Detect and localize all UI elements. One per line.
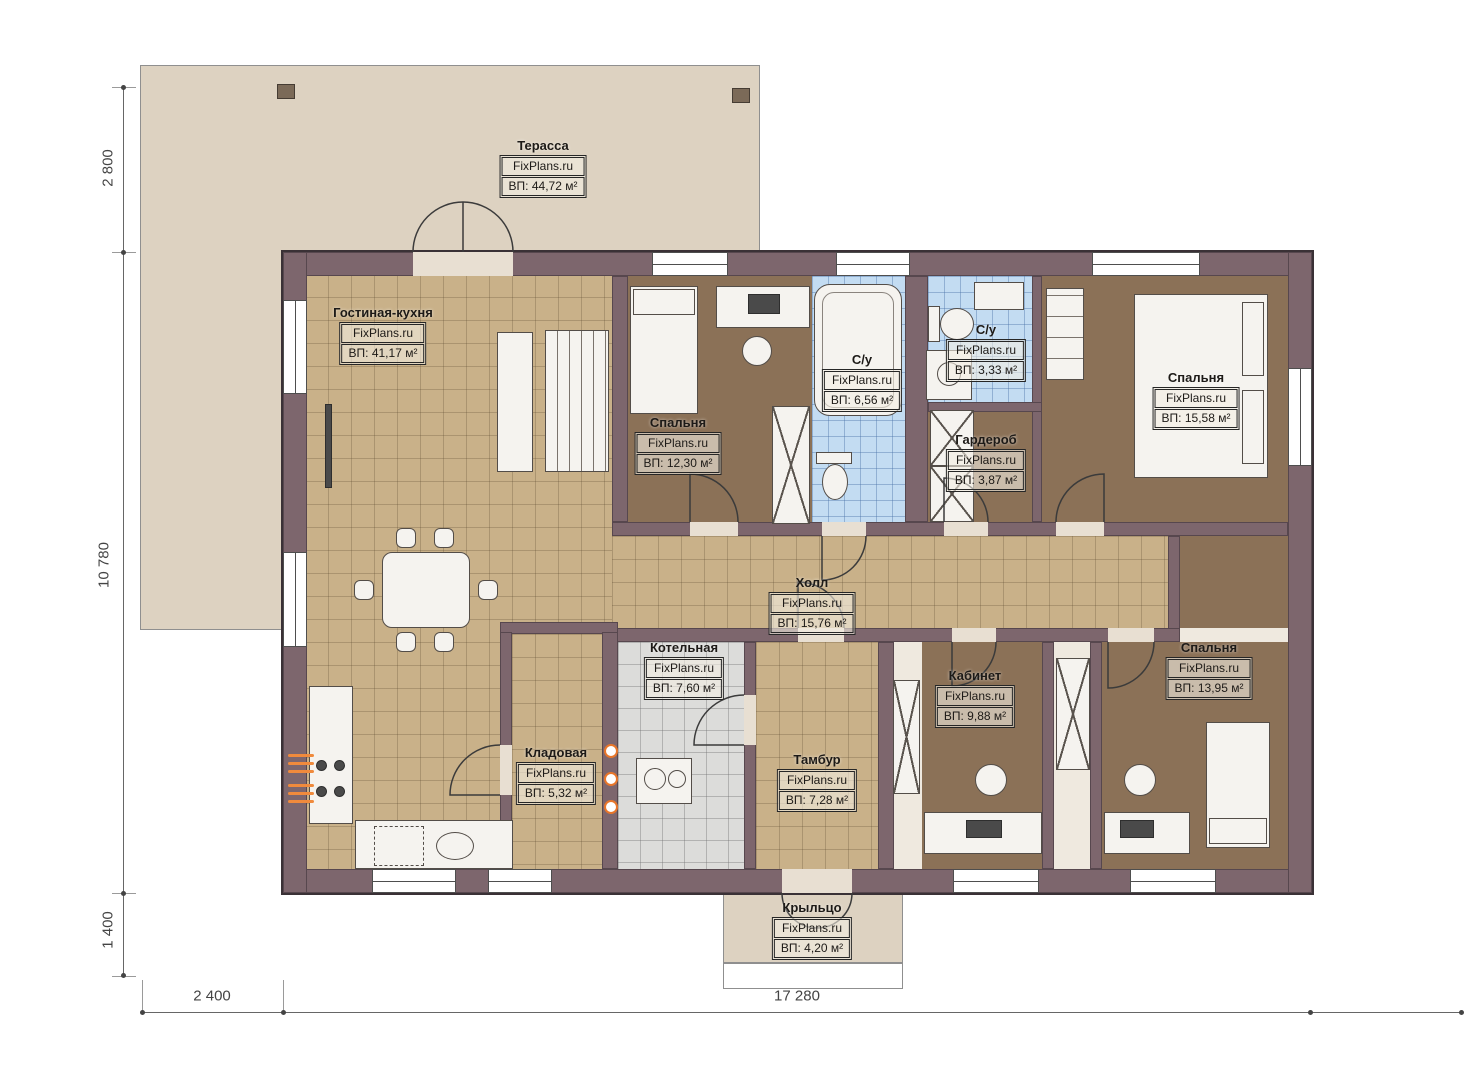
chair-icon xyxy=(434,528,454,548)
dimension-label-house-height: 10 780 xyxy=(96,542,113,588)
wall-interior xyxy=(612,276,628,522)
wall-interior xyxy=(1168,536,1180,642)
dimension-tick xyxy=(281,1010,286,1015)
pipe-mark-icon xyxy=(288,784,314,787)
pipe-mark-icon xyxy=(288,792,314,795)
pillow-icon xyxy=(1242,302,1264,376)
window xyxy=(953,869,1039,893)
watermark: FixPlans.ru xyxy=(1168,659,1251,678)
dimension-label-terrace-depth: 2 800 xyxy=(100,149,117,187)
room-name: С/у xyxy=(822,352,902,367)
wall-interior xyxy=(1090,642,1102,869)
room-label-bedroom-3: Спальня FixPlans.ru ВП: 13,95 м² xyxy=(1166,640,1253,700)
watermark: FixPlans.ru xyxy=(771,594,854,613)
room-area: ВП: 3,33 м² xyxy=(948,361,1024,380)
room-area: ВП: 5,32 м² xyxy=(518,784,594,803)
wall-interior xyxy=(905,276,928,522)
wardrobe-icon xyxy=(1056,658,1090,770)
wall-right xyxy=(1288,252,1312,893)
closet-icon xyxy=(893,680,920,794)
room-label-terrace: Терасса FixPlans.ru ВП: 44,72 м² xyxy=(500,138,587,198)
window xyxy=(283,552,307,647)
chair-icon xyxy=(434,632,454,652)
room-label-living-kitchen: Гостиная-кухня FixPlans.ru ВП: 41,17 м² xyxy=(333,305,433,365)
pipe-mark-icon xyxy=(288,800,314,803)
toilet-icon xyxy=(822,464,848,500)
chair-icon xyxy=(396,632,416,652)
window xyxy=(488,869,552,893)
shelving-icon xyxy=(545,330,609,472)
room-floor-hall xyxy=(612,536,1168,628)
dining-table-icon xyxy=(382,552,470,628)
toilet-tank-icon xyxy=(928,306,940,342)
watermark: FixPlans.ru xyxy=(948,451,1024,470)
room-floor-bedroom-3-upper xyxy=(1180,536,1288,628)
chair-icon xyxy=(478,580,498,600)
room-label-office: Кабинет FixPlans.ru ВП: 9,88 м² xyxy=(935,668,1015,728)
office-chair-icon xyxy=(1124,764,1156,796)
window xyxy=(1288,368,1312,466)
room-label-boiler: Котельная FixPlans.ru ВП: 7,60 м² xyxy=(644,640,724,700)
window xyxy=(372,869,456,893)
room-name: Терасса xyxy=(500,138,587,153)
room-label-bathroom-1: С/у FixPlans.ru ВП: 6,56 м² xyxy=(822,352,902,412)
watermark: FixPlans.ru xyxy=(779,771,855,790)
room-area: ВП: 13,95 м² xyxy=(1168,679,1251,698)
dimension-tick xyxy=(121,973,126,978)
door-opening xyxy=(500,745,512,795)
boiler-dial-icon xyxy=(668,770,686,788)
room-area: ВП: 4,20 м² xyxy=(774,939,850,958)
heating-manifold-icon xyxy=(604,800,618,814)
watermark: FixPlans.ru xyxy=(502,157,585,176)
door-opening xyxy=(413,252,513,276)
room-area: ВП: 12,30 м² xyxy=(637,454,720,473)
room-name: Кабинет xyxy=(935,668,1015,683)
room-label-bathroom-2: С/у FixPlans.ru ВП: 3,33 м² xyxy=(946,322,1026,382)
wardrobe-icon xyxy=(772,406,810,524)
chair-icon xyxy=(396,528,416,548)
room-label-porch: Крыльцо FixPlans.ru ВП: 4,20 м² xyxy=(772,900,852,960)
tv-icon xyxy=(325,404,332,488)
dimension-tick xyxy=(140,1010,145,1015)
room-area: ВП: 9,88 м² xyxy=(937,707,1013,726)
room-area: ВП: 3,87 м² xyxy=(948,471,1024,490)
wall-interior xyxy=(744,642,756,869)
stove-burner-icon xyxy=(316,786,327,797)
watermark: FixPlans.ru xyxy=(937,687,1013,706)
stove-burner-icon xyxy=(334,760,345,771)
room-area: ВП: 44,72 м² xyxy=(502,177,585,196)
pipe-mark-icon xyxy=(288,754,314,757)
dimension-label-porch-depth: 1 400 xyxy=(100,911,117,949)
dimension-ext xyxy=(142,980,143,1014)
pillow-icon xyxy=(1209,818,1267,844)
terrace-pillar xyxy=(277,84,295,99)
room-name: Гардероб xyxy=(946,432,1026,447)
door-opening xyxy=(952,628,996,642)
room-area: ВП: 41,17 м² xyxy=(342,344,425,363)
room-label-wardrobe: Гардероб FixPlans.ru ВП: 3,87 м² xyxy=(946,432,1026,492)
dimension-tick xyxy=(121,85,126,90)
room-area: ВП: 7,60 м² xyxy=(646,679,722,698)
room-area: ВП: 6,56 м² xyxy=(824,391,900,410)
watermark: FixPlans.ru xyxy=(518,764,594,783)
sink-icon xyxy=(974,282,1024,310)
dimension-tick xyxy=(121,891,126,896)
watermark: FixPlans.ru xyxy=(824,371,900,390)
chair-icon xyxy=(354,580,374,600)
laptop-icon xyxy=(748,294,780,314)
room-name: Гостиная-кухня xyxy=(333,305,433,320)
room-name: Котельная xyxy=(644,640,724,655)
terrace-pillar xyxy=(732,88,750,103)
stove-burner-icon xyxy=(334,786,345,797)
dimension-ext xyxy=(283,980,284,1014)
room-area: ВП: 15,58 м² xyxy=(1155,409,1238,428)
office-chair-icon xyxy=(742,336,772,366)
room-name: Спальня xyxy=(1166,640,1253,655)
room-label-vestibule: Тамбур FixPlans.ru ВП: 7,28 м² xyxy=(777,752,857,812)
dimension-label-house-width: 17 280 xyxy=(774,988,820,1005)
room-label-hall: Холл FixPlans.ru ВП: 15,76 м² xyxy=(769,575,856,635)
window xyxy=(283,300,307,394)
pillow-icon xyxy=(1242,390,1264,464)
room-area: ВП: 7,28 м² xyxy=(779,791,855,810)
dimension-line-left xyxy=(123,87,124,976)
watermark: FixPlans.ru xyxy=(637,434,720,453)
door-opening xyxy=(944,522,988,536)
room-area: ВП: 15,76 м² xyxy=(771,614,854,633)
wall-storage-top xyxy=(500,622,618,634)
dishwasher-icon xyxy=(374,826,424,866)
window xyxy=(652,252,728,276)
wall-interior xyxy=(878,642,894,869)
kitchen-island-icon xyxy=(497,332,533,472)
pipe-mark-icon xyxy=(288,770,314,773)
room-label-bedroom-2: Спальня FixPlans.ru ВП: 15,58 м² xyxy=(1153,370,1240,430)
room-name: Кладовая xyxy=(516,745,596,760)
room-name: Спальня xyxy=(1153,370,1240,385)
door-opening xyxy=(782,869,852,893)
window xyxy=(836,252,910,276)
printer-icon xyxy=(966,820,1002,838)
room-name: С/у xyxy=(946,322,1026,337)
office-chair-icon xyxy=(975,764,1007,796)
watermark: FixPlans.ru xyxy=(646,659,722,678)
heating-manifold-icon xyxy=(604,772,618,786)
dimension-line-bottom xyxy=(142,1012,1462,1013)
closet-icon xyxy=(1046,288,1084,380)
pipe-mark-icon xyxy=(288,762,314,765)
door-opening xyxy=(1108,628,1154,642)
door-opening xyxy=(1056,522,1104,536)
boiler-dial-icon xyxy=(644,768,666,790)
printer-icon xyxy=(1120,820,1154,838)
watermark: FixPlans.ru xyxy=(948,341,1024,360)
pillow-icon xyxy=(633,289,695,315)
door-opening xyxy=(690,522,738,536)
room-name: Тамбур xyxy=(777,752,857,767)
wall-interior xyxy=(1032,276,1042,522)
watermark: FixPlans.ru xyxy=(1155,389,1238,408)
room-label-bedroom-1: Спальня FixPlans.ru ВП: 12,30 м² xyxy=(635,415,722,475)
heating-manifold-icon xyxy=(604,744,618,758)
kitchen-counter-icon xyxy=(309,686,353,824)
stove-burner-icon xyxy=(316,760,327,771)
watermark: FixPlans.ru xyxy=(774,919,850,938)
toilet-tank-icon xyxy=(816,452,852,464)
room-name: Крыльцо xyxy=(772,900,852,915)
dimension-label-terrace-offset: 2 400 xyxy=(193,988,231,1005)
wall-interior xyxy=(1042,642,1054,869)
kitchen-sink-icon xyxy=(436,832,474,860)
dimension-tick xyxy=(1308,1010,1313,1015)
dimension-tick xyxy=(121,250,126,255)
room-name: Спальня xyxy=(635,415,722,430)
window xyxy=(1092,252,1200,276)
room-name: Холл xyxy=(769,575,856,590)
watermark: FixPlans.ru xyxy=(342,324,425,343)
porch-step xyxy=(723,963,903,989)
door-opening xyxy=(822,522,866,536)
dimension-tick xyxy=(1459,1010,1464,1015)
window xyxy=(1130,869,1216,893)
door-opening xyxy=(744,695,756,745)
floor-plan: Терасса FixPlans.ru ВП: 44,72 м² Гостина… xyxy=(0,0,1473,1080)
room-label-storage: Кладовая FixPlans.ru ВП: 5,32 м² xyxy=(516,745,596,805)
